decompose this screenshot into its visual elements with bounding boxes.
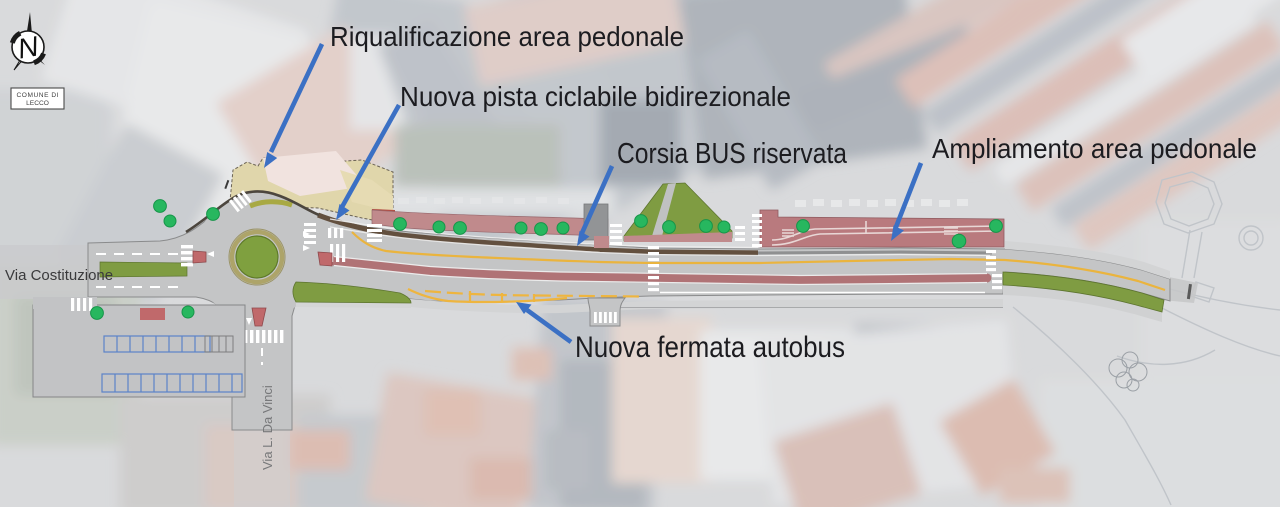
svg-text:Ampliamento area pedonale: Ampliamento area pedonale bbox=[932, 133, 1257, 164]
svg-text:Nuova fermata autobus: Nuova fermata autobus bbox=[575, 331, 845, 364]
svg-text:Nuova pista ciclabile bidirezi: Nuova pista ciclabile bidirezionale bbox=[400, 81, 791, 112]
svg-text:COMUNE DI: COMUNE DI bbox=[17, 92, 59, 99]
svg-text:LECCO: LECCO bbox=[26, 100, 49, 107]
svg-text:Riqualificazione area pedonale: Riqualificazione area pedonale bbox=[330, 21, 684, 52]
svg-text:Via Costituzione: Via Costituzione bbox=[5, 267, 113, 284]
svg-text:Corsia BUS riservata: Corsia BUS riservata bbox=[617, 138, 848, 170]
svg-text:Via L. Da Vinci: Via L. Da Vinci bbox=[260, 385, 275, 470]
